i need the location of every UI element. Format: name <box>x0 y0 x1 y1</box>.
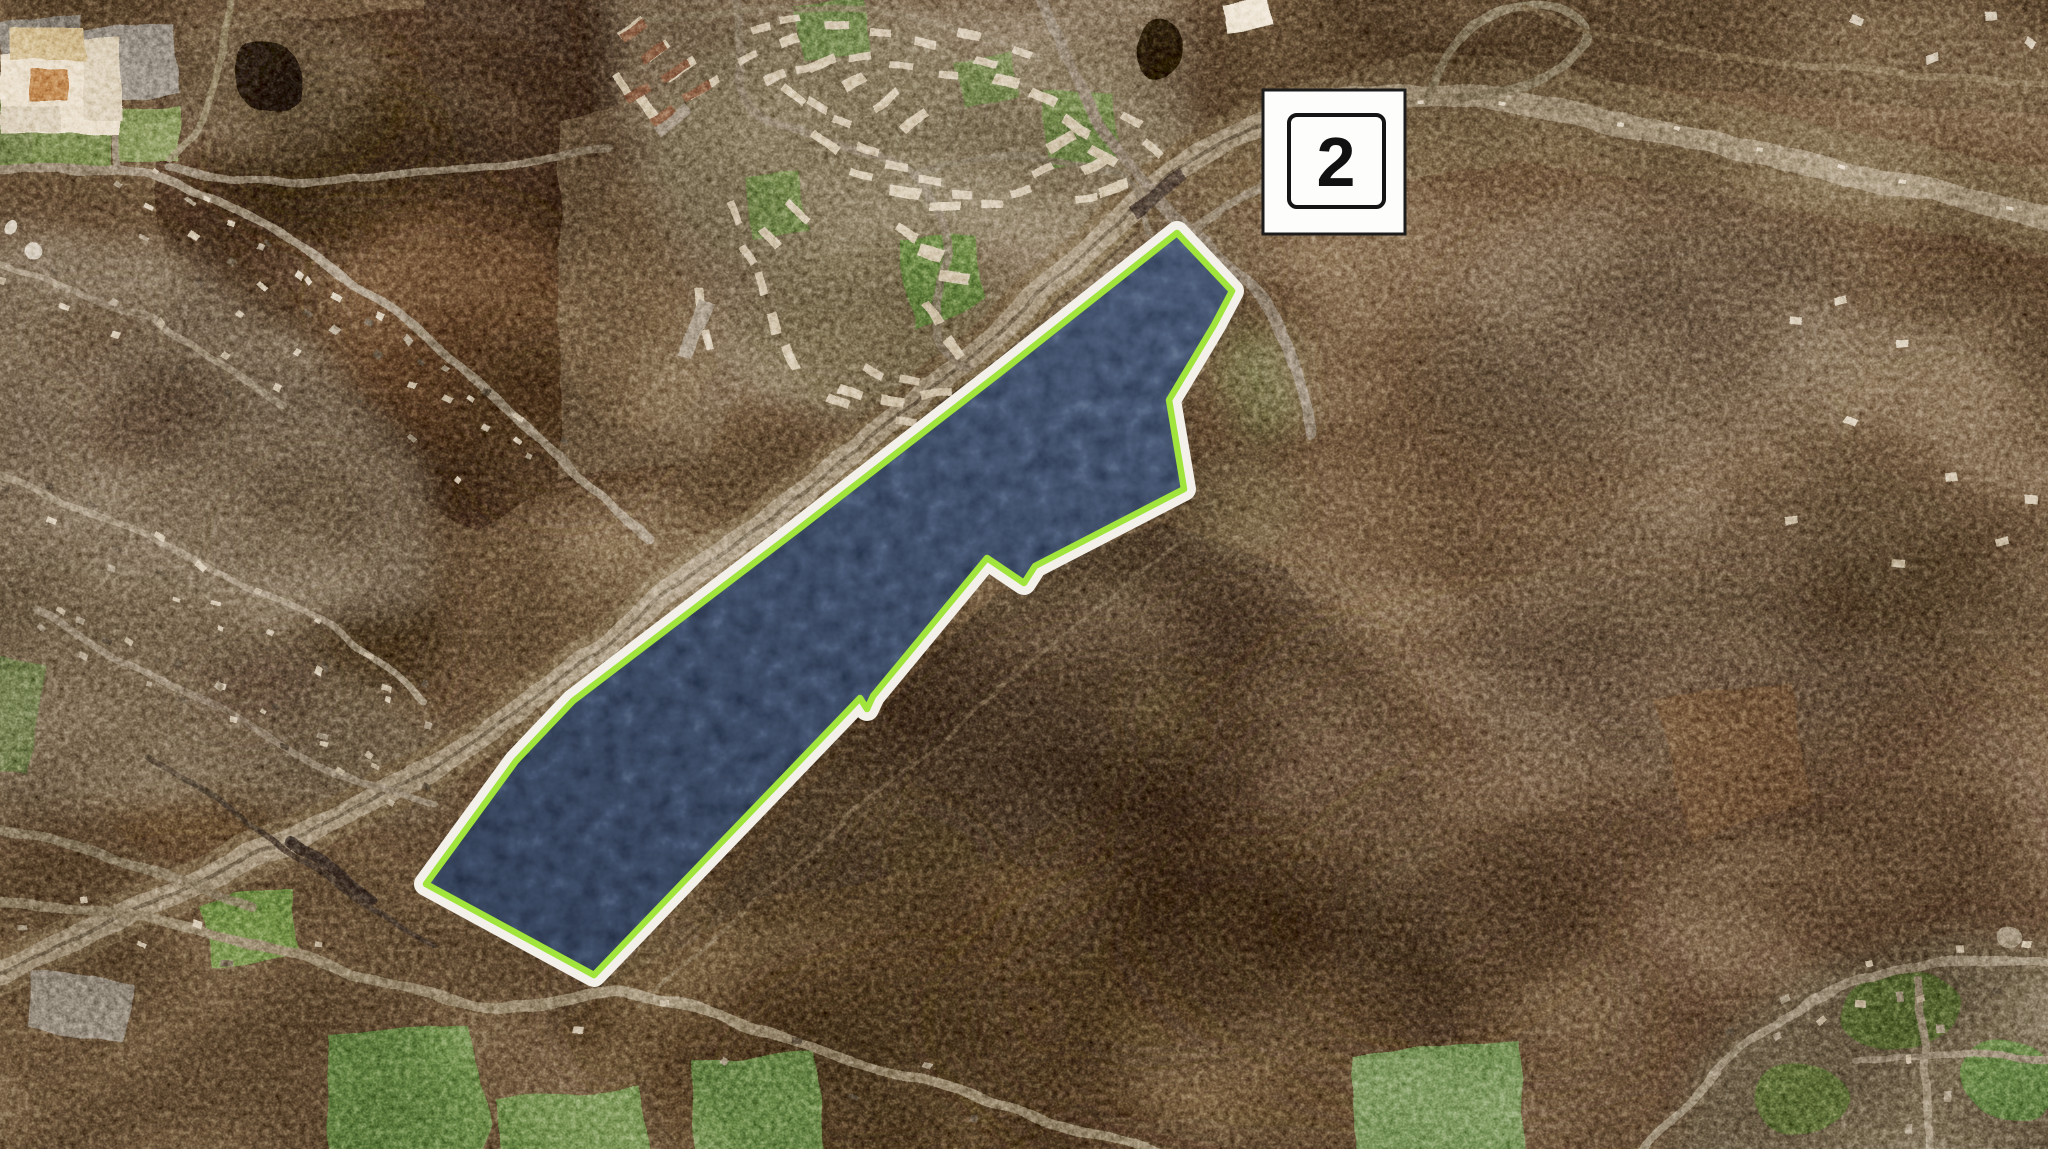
svg-text:2: 2 <box>1317 123 1356 201</box>
